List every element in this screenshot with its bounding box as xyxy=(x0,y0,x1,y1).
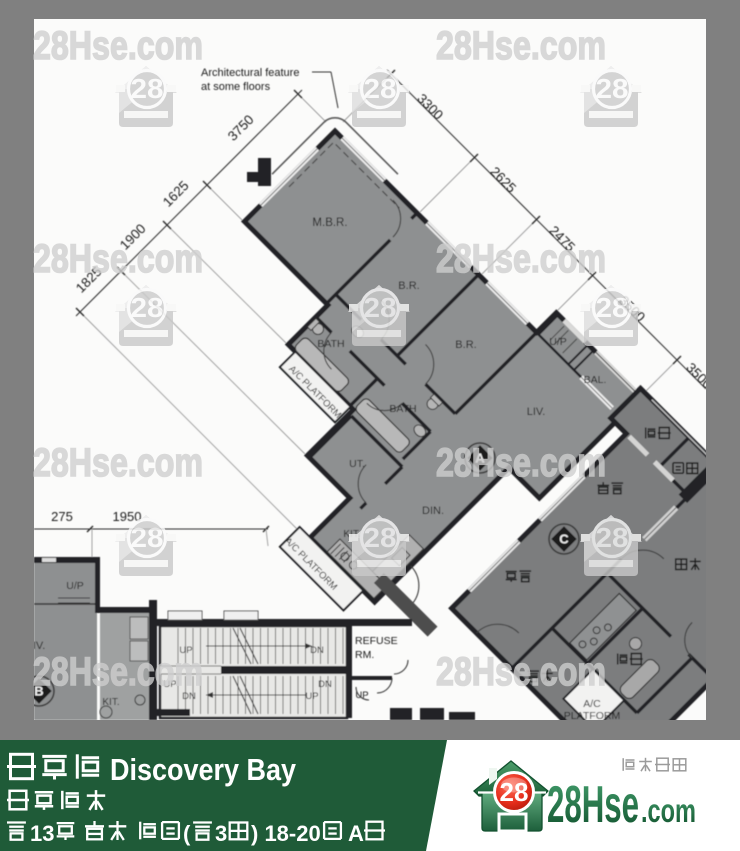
svg-text:BAL.: BAL. xyxy=(584,374,607,386)
svg-text:UT.: UT. xyxy=(349,458,365,470)
svg-text:A/C: A/C xyxy=(583,698,601,710)
svg-text:C: C xyxy=(559,532,569,547)
svg-text:28: 28 xyxy=(596,292,629,323)
svg-text:28: 28 xyxy=(131,73,164,104)
svg-text:28Hse: 28Hse xyxy=(547,776,639,834)
svg-text:28Hse.com: 28Hse.com xyxy=(436,24,606,68)
svg-text:B.R.: B.R. xyxy=(398,280,419,292)
svg-text:A: A xyxy=(348,821,364,846)
svg-text:28: 28 xyxy=(596,73,629,104)
svg-text:3: 3 xyxy=(215,821,227,846)
svg-text:REFUSE: REFUSE xyxy=(355,635,398,647)
svg-text:275: 275 xyxy=(51,509,73,524)
svg-text:28Hse.com: 28Hse.com xyxy=(436,441,606,485)
svg-text:28Hse.com: 28Hse.com xyxy=(436,650,606,694)
svg-text:DN: DN xyxy=(318,679,332,690)
svg-text:Architectural feature: Architectural feature xyxy=(201,67,299,79)
svg-text:(: ( xyxy=(183,821,191,846)
svg-text:BATH: BATH xyxy=(389,403,416,415)
svg-text:UP: UP xyxy=(305,691,318,702)
svg-text:13: 13 xyxy=(30,821,54,846)
svg-text:at some floors: at some floors xyxy=(201,81,271,93)
svg-text:28: 28 xyxy=(131,292,164,323)
svg-text:28: 28 xyxy=(364,292,397,323)
svg-text:28Hse.com: 28Hse.com xyxy=(436,237,606,281)
svg-text:28Hse.com: 28Hse.com xyxy=(33,441,203,485)
svg-text:28Hse.com: 28Hse.com xyxy=(33,650,203,694)
svg-text:28: 28 xyxy=(364,522,397,553)
svg-text:28: 28 xyxy=(364,73,397,104)
svg-text:KIT.: KIT. xyxy=(102,697,119,708)
svg-text:28: 28 xyxy=(596,522,629,553)
svg-text:28: 28 xyxy=(131,522,164,553)
svg-text:RM.: RM. xyxy=(355,649,374,661)
svg-text:28: 28 xyxy=(500,777,529,807)
svg-text:U/P: U/P xyxy=(66,580,84,592)
svg-text:) 18-20: ) 18-20 xyxy=(251,821,321,846)
svg-text:28Hse.com: 28Hse.com xyxy=(33,237,203,281)
svg-text:DIN.: DIN. xyxy=(422,505,444,517)
svg-text:DN: DN xyxy=(310,645,324,656)
svg-text:U/P: U/P xyxy=(549,336,567,348)
svg-text:B.R.: B.R. xyxy=(455,339,476,351)
svg-text:BATH: BATH xyxy=(317,338,344,350)
svg-text:.com: .com xyxy=(641,792,696,829)
svg-text:LIV.: LIV. xyxy=(527,406,546,418)
svg-text:M.B.R.: M.B.R. xyxy=(312,217,347,229)
svg-text:Discovery Bay: Discovery Bay xyxy=(110,752,297,787)
svg-text:28Hse.com: 28Hse.com xyxy=(33,24,203,68)
